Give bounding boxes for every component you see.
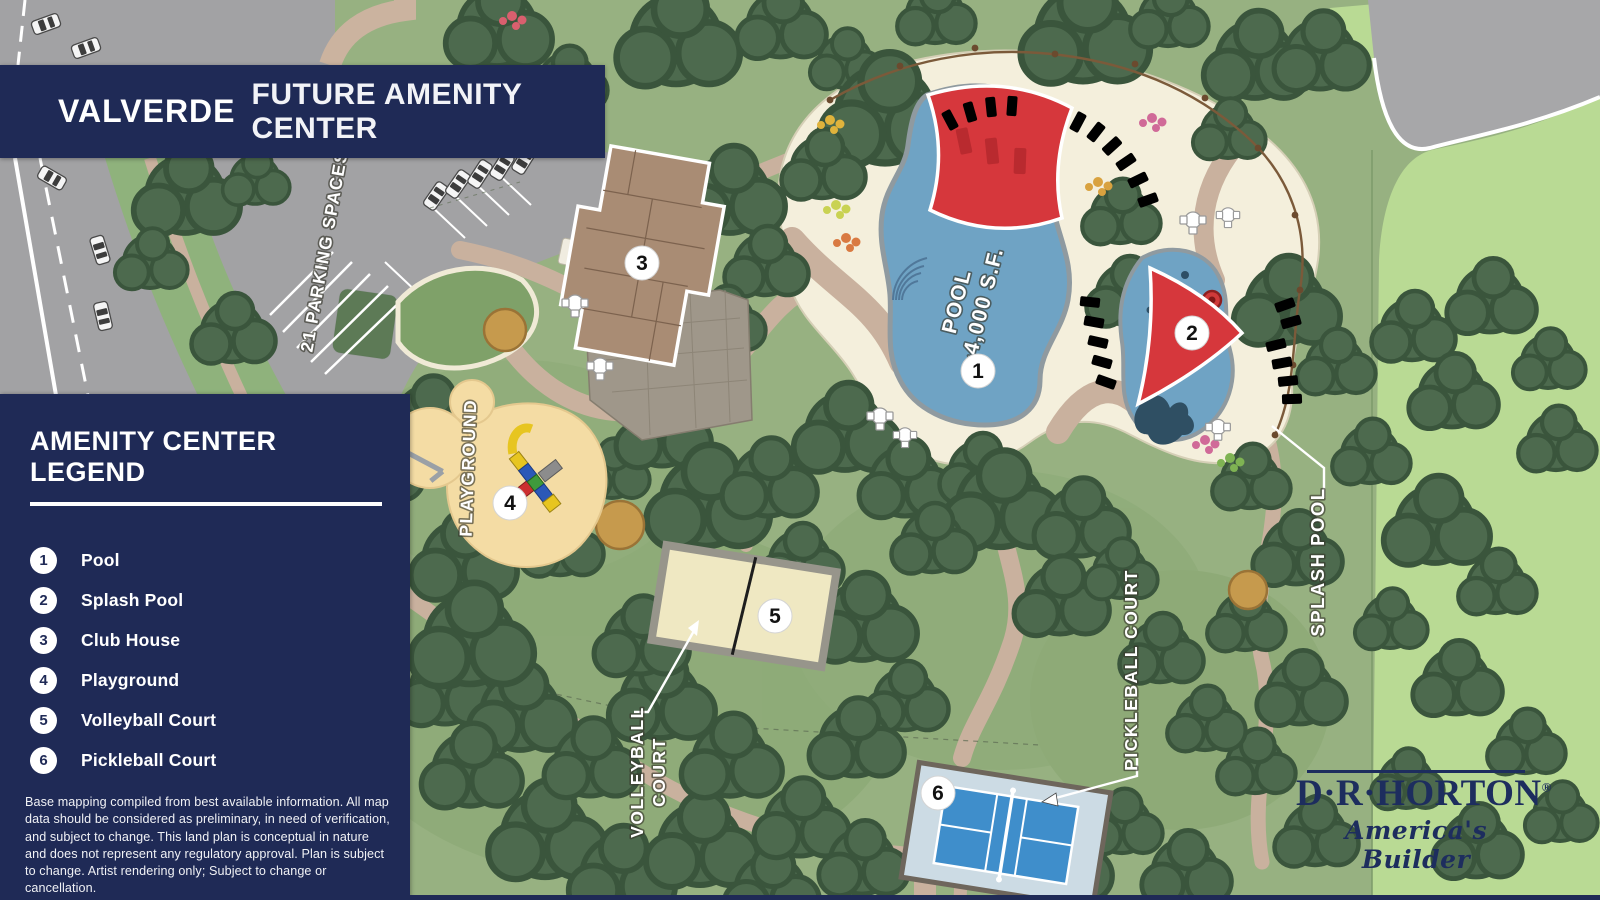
splash-pool-label: SPLASH POOL (1307, 487, 1328, 636)
legend-label-pool: Pool (81, 550, 120, 571)
legend-badge-1: 1 (30, 547, 57, 574)
legend-label-pickleball: Pickleball Court (81, 750, 216, 771)
legend-badge-5: 5 (30, 707, 57, 734)
marker-playground: 4 (493, 486, 527, 520)
legend-item-club-house: 3 Club House (30, 620, 382, 660)
marker-volleyball: 5 (758, 599, 792, 633)
legend-divider (30, 502, 382, 506)
site-plan-screenshot: 21 PARKING SPACES PLAYGROUND POOL ~4,000… (0, 0, 1600, 900)
registered-mark: ® (1542, 780, 1552, 795)
title-banner: VALVERDE FUTURE AMENITY CENTER (0, 65, 605, 158)
logo-tagline: America's Builder (1296, 816, 1536, 874)
svg-text:VOLLEYBALL: VOLLEYBALL (627, 706, 647, 838)
legend-badge-6: 6 (30, 747, 57, 774)
marker-pool: 1 (961, 354, 995, 388)
legend-title: AMENITY CENTER LEGEND (30, 426, 382, 488)
pickleball-label: PICKLEBALL COURT (1121, 569, 1141, 771)
legend-item-splash-pool: 2 Splash Pool (30, 580, 382, 620)
legend-badge-4: 4 (30, 667, 57, 694)
svg-text:3: 3 (636, 252, 648, 275)
svg-text:2: 2 (1186, 322, 1198, 345)
svg-text:6: 6 (932, 782, 944, 805)
legend-item-pool: 1 Pool (30, 540, 382, 580)
svg-text:4: 4 (504, 492, 516, 515)
legend-item-volleyball: 5 Volleyball Court (30, 700, 382, 740)
disclaimer-text: Base mapping compiled from best availabl… (25, 794, 391, 898)
legend-label-volleyball: Volleyball Court (81, 710, 216, 731)
banner-subtitle: FUTURE AMENITY CENTER (252, 78, 606, 146)
bottom-border (0, 895, 1600, 900)
marker-splash-pool: 2 (1175, 316, 1209, 350)
legend-badge-2: 2 (30, 587, 57, 614)
legend-item-playground: 4 Playground (30, 660, 382, 700)
svg-text:5: 5 (769, 605, 781, 628)
legend-items: 1 Pool 2 Splash Pool 3 Club House 4 Play… (30, 540, 382, 780)
pool-shade-sail (928, 86, 1072, 228)
legend-label-splash-pool: Splash Pool (81, 590, 183, 611)
legend-label-playground: Playground (81, 670, 179, 691)
marker-pickleball: 6 (921, 776, 955, 810)
legend-panel: AMENITY CENTER LEGEND 1 Pool 2 Splash Po… (0, 394, 410, 900)
legend-badge-3: 3 (30, 627, 57, 654)
legend-item-pickleball: 6 Pickleball Court (30, 740, 382, 780)
logo-wordmark: D·R·HORTON® (1296, 773, 1536, 816)
drhorton-logo: D·R·HORTON® America's Builder (1296, 770, 1536, 874)
community-name: VALVERDE (58, 93, 236, 130)
legend-label-club-house: Club House (81, 630, 180, 651)
svg-text:1: 1 (972, 360, 984, 383)
svg-text:COURT: COURT (649, 737, 669, 807)
marker-club-house: 3 (625, 246, 659, 280)
